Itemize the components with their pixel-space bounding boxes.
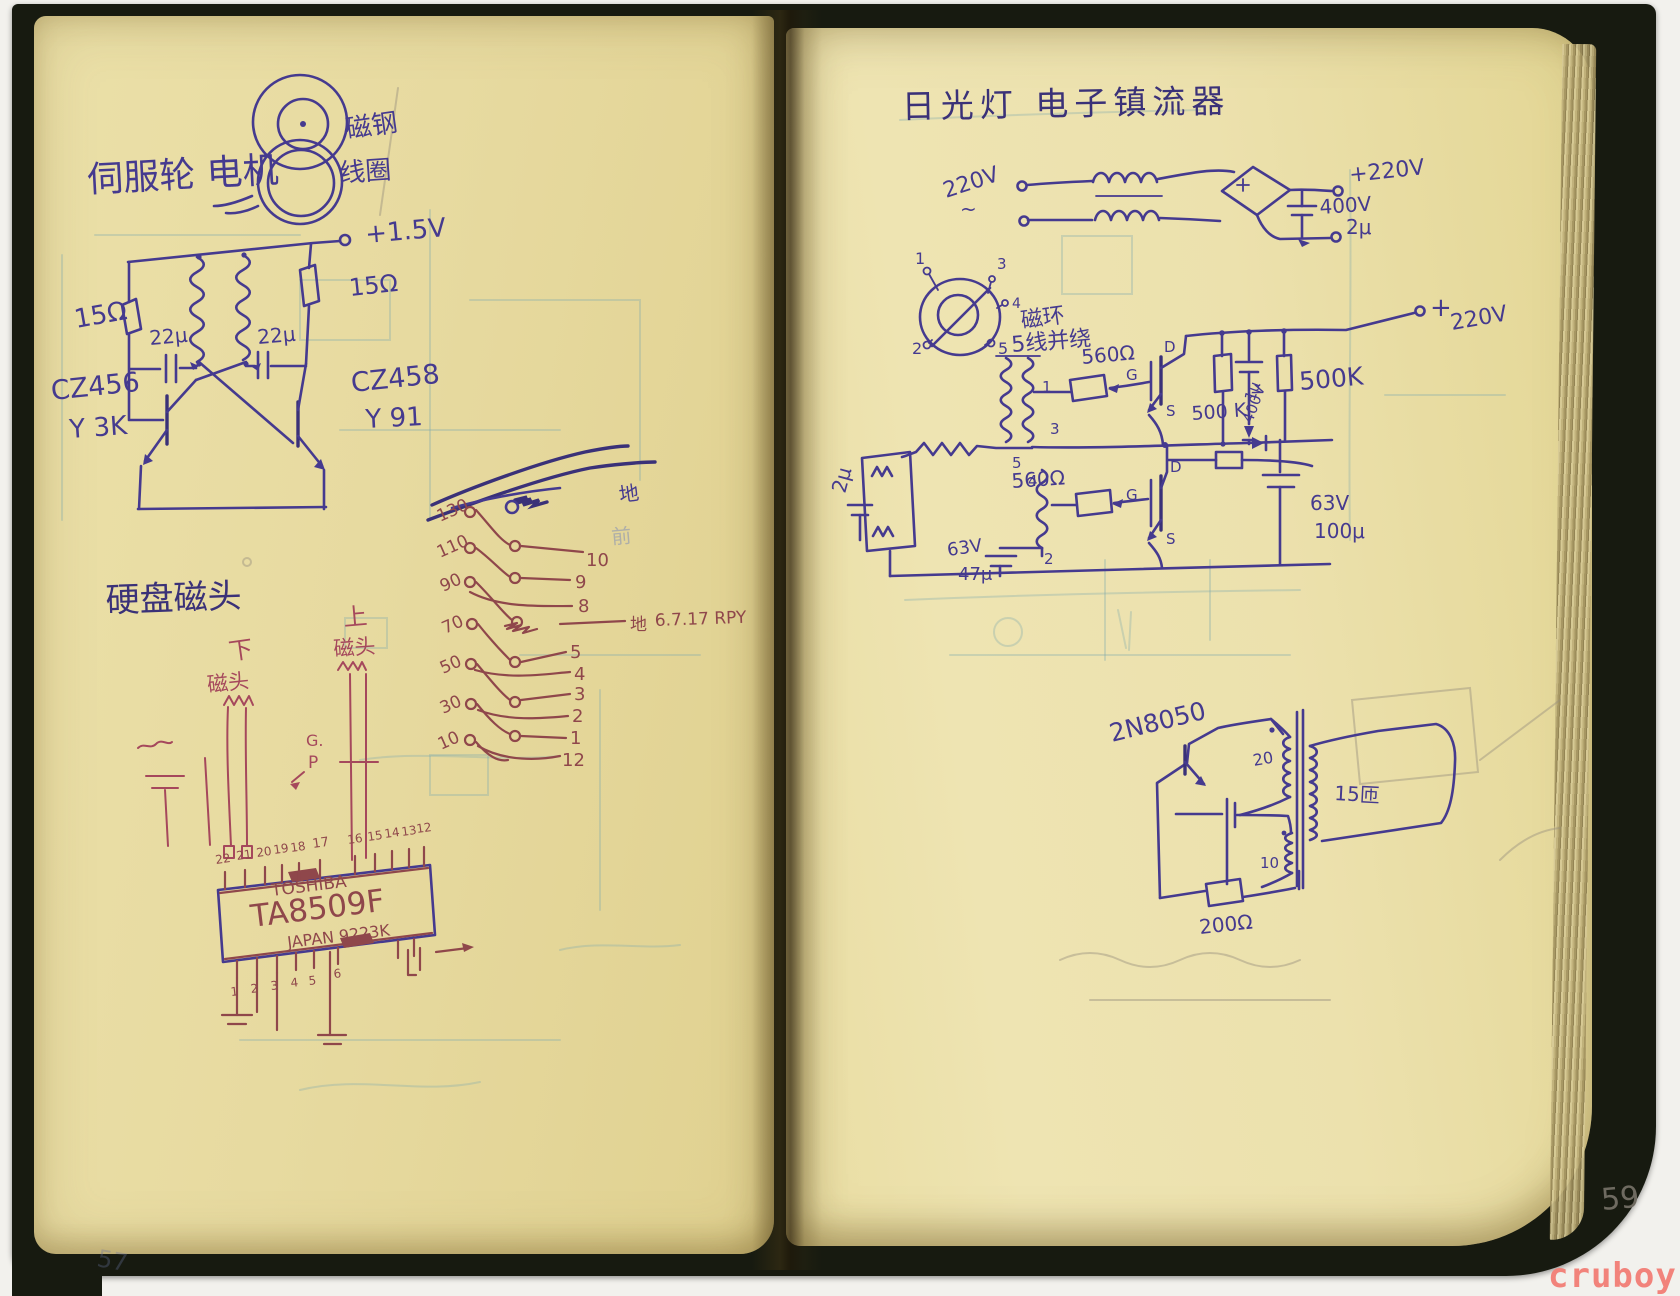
ic-pin-12: 12 [415, 820, 432, 836]
cap2-label: 22μ [256, 322, 296, 349]
pot-500k-label: 500 K [1191, 399, 1248, 425]
faint-page-number: 57 [95, 1244, 130, 1277]
ic-pin-5: 5 [308, 973, 317, 988]
supply-label: +1.5V [364, 213, 447, 250]
ac-symbol: ~ [960, 197, 977, 221]
ic-chip: TOSHIBA TA8509F JAPAN 9223K 22 21 20 19 … [214, 820, 474, 1044]
mosfet2-d-label: D [1170, 458, 1182, 476]
ribbon-pin-10: 10 [586, 550, 609, 571]
mosfet2-s-label: S [1166, 530, 1176, 548]
resistor-560-1-label: 560Ω [1080, 340, 1135, 369]
cap-2u-label: 2μ [827, 464, 857, 495]
transistor2-gain-label: Y 91 [364, 402, 424, 435]
upper-head-label-2: 磁头 [333, 634, 377, 661]
ribbon-pin-4: 4 [574, 664, 585, 685]
page-number: 59 [1600, 1180, 1641, 1218]
ic-pin-21: 21 [235, 847, 252, 863]
supply-voltage-label: 220V [1449, 301, 1510, 336]
mosfet1-s-label: S [1166, 402, 1176, 420]
disk-head-section: 硬盘磁头 下 磁头 上 磁头 G. P [105, 576, 378, 860]
ribbon-pin-3: 3 [574, 684, 585, 705]
ribbon-front-label: 前 [610, 523, 632, 549]
ic-pin-18: 18 [289, 839, 306, 855]
ribbon-left-30: 30 [437, 691, 465, 718]
ic-pin-20: 20 [255, 844, 272, 860]
inverter-circuit: 1 3 5 4 2 560Ω D G S + 220V [827, 293, 1510, 585]
ic-pin-4: 4 [290, 975, 299, 990]
transistor1-label: CZ456 [49, 367, 141, 407]
cap-63v-label: 63V [946, 535, 984, 561]
ic-pin-6: 6 [333, 966, 342, 981]
ribbon-pin-5: 5 [570, 642, 581, 663]
ribbon-left-90: 90 [437, 569, 465, 596]
multivibrator-circuit: +1.5V 15Ω 15Ω 22μ 22μ [49, 213, 447, 509]
transistor1-gain-label: Y 3K [67, 411, 129, 445]
ribbon-cable: 地 前 130 110 90 70 50 30 10 [428, 446, 747, 771]
ic-pin-15: 15 [366, 828, 383, 844]
ribbon-gnd-note-char: 地 [630, 615, 647, 635]
toroid-pin-1: 1 [915, 249, 925, 268]
ballast-title-label: 日光灯 电子镇流器 [901, 81, 1230, 126]
ribbon-pin-1: 1 [570, 728, 581, 749]
lower-head-label-2: 磁头 [206, 669, 250, 697]
motor-title-label: 伺服轮 电机 [86, 150, 279, 201]
winding-3-label: 3 [1050, 420, 1060, 438]
ribbon-pin-9: 9 [575, 572, 586, 593]
mosfet1-g-label: G [1126, 366, 1138, 384]
ribbon-gnd-note: 6.7.17 RPY [654, 608, 747, 631]
transistor2-label: CZ458 [349, 359, 441, 399]
upper-head-label-1: 上 [342, 602, 368, 632]
rectifier-input: 220V ~ +220V 400V 2μ [940, 155, 1426, 247]
ribbon-pin-2: 2 [572, 706, 583, 727]
mosfet1-d-label: D [1164, 338, 1176, 356]
resistor-200-label: 200Ω [1198, 910, 1254, 939]
dc-out-label: +220V [1348, 155, 1426, 188]
resistor1-label: 15Ω [72, 296, 129, 335]
cap-100u-label: 100μ [1314, 519, 1365, 543]
cap-47u-label: 47μ [958, 564, 993, 585]
p-label: P [308, 753, 318, 773]
toroid-pin-2: 2 [912, 339, 922, 358]
ribbon-left-50: 50 [437, 651, 465, 678]
cap-63v-2-label: 63V [1310, 491, 1349, 515]
lower-head-label-1: 下 [227, 635, 255, 666]
ribbon-ground-label: 地 [617, 480, 640, 507]
handwritten-drawing-layer: 伺服轮 电机 磁钢 线圈 +1.5V 15Ω [0, 0, 1680, 1296]
mosfet2-g-label: G [1126, 486, 1138, 504]
ic-pin-17: 17 [311, 835, 329, 852]
toroid-pin-3: 3 [997, 255, 1007, 273]
ribbon-pin-8: 8 [578, 596, 589, 617]
ic-pin-19: 19 [272, 841, 289, 857]
g-label: G. [306, 731, 323, 750]
disk-head-title-label: 硬盘磁头 [105, 576, 242, 621]
output-stage: 2N8050 20 10 [1106, 696, 1455, 939]
supply-plus-label: + [1430, 293, 1452, 323]
ribbon-left-10: 10 [435, 727, 463, 754]
resistor-560-2-label: 560Ω [1011, 465, 1066, 493]
primary-turns-label: 20 [1251, 748, 1274, 770]
secondary-turns-label: 15匝 [1334, 781, 1381, 807]
ic-pin-14: 14 [383, 825, 400, 841]
ballast-title: 日光灯 电子镇流器 [901, 81, 1230, 126]
notebook-scan: 伺服轮 电机 磁钢 线圈 +1.5V 15Ω [0, 0, 1680, 1296]
coil-label: 线圈 [338, 155, 392, 189]
cap1-label: 22μ [148, 323, 188, 350]
ribbon-left-70: 70 [439, 611, 467, 638]
motor-sketch: 伺服轮 电机 磁钢 线圈 [86, 75, 399, 224]
ic-pin-22: 22 [214, 851, 231, 867]
resistor2-label: 15Ω [348, 269, 400, 302]
feedback-turns-label: 10 [1260, 854, 1279, 872]
resistor-500k-label: 500K [1298, 361, 1365, 396]
ribbon-pin-12: 12 [562, 750, 585, 771]
toroid-core: 1 3 4 5 2 磁环 5线并绕 [912, 249, 1092, 358]
winding-2-label: 2 [1044, 550, 1054, 568]
watermark: cruboy [1548, 1256, 1677, 1296]
dc-cap-value-label: 2μ [1346, 215, 1372, 239]
ic-pin-16: 16 [346, 831, 363, 847]
transistor-2n8050-label: 2N8050 [1106, 696, 1208, 748]
